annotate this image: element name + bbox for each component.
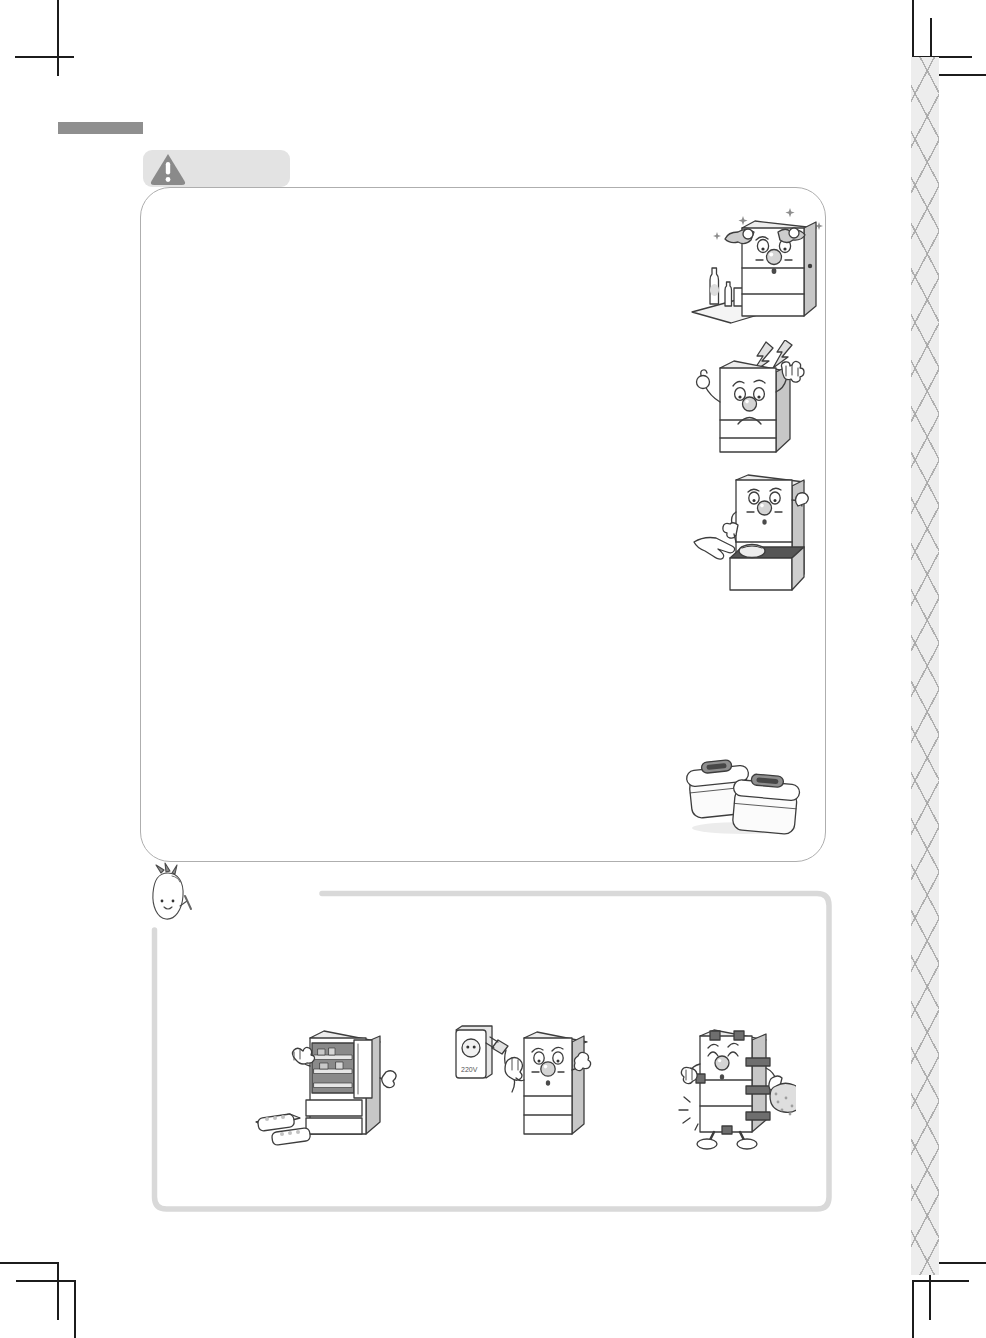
caution-tab xyxy=(143,150,290,187)
trim-mark-bottom-right-h2 xyxy=(912,1280,969,1282)
warning-triangle-icon xyxy=(148,152,188,186)
illustration-kimchi-containers xyxy=(682,750,802,838)
binding-strip-texture xyxy=(911,57,939,1275)
illustration-fridge-polishing xyxy=(686,204,828,334)
trim-mark-bottom-left-h1 xyxy=(0,1262,59,1264)
trim-mark-top-left-v xyxy=(57,0,59,76)
trim-mark-bottom-left-v2 xyxy=(74,1280,76,1338)
illustration-fridge-power-plug: 220V xyxy=(444,1014,594,1158)
trim-mark-top-right-v1 xyxy=(912,0,914,58)
manual-page: 220V xyxy=(0,0,986,1338)
illustration-fridge-taped-moving xyxy=(644,1016,796,1160)
trim-mark-top-left-h xyxy=(15,56,74,58)
section-bar xyxy=(58,122,143,134)
trim-mark-bottom-left-v1 xyxy=(57,1262,59,1320)
illustration-fridge-lightning xyxy=(690,340,808,466)
outlet-voltage-label: 220V xyxy=(461,1066,478,1073)
illustration-fridge-open-door-trays xyxy=(250,1016,398,1160)
trim-mark-bottom-right-v2 xyxy=(912,1280,914,1338)
illustration-fridge-drawer-food xyxy=(690,472,822,596)
trim-mark-bottom-left-h2 xyxy=(16,1280,76,1282)
